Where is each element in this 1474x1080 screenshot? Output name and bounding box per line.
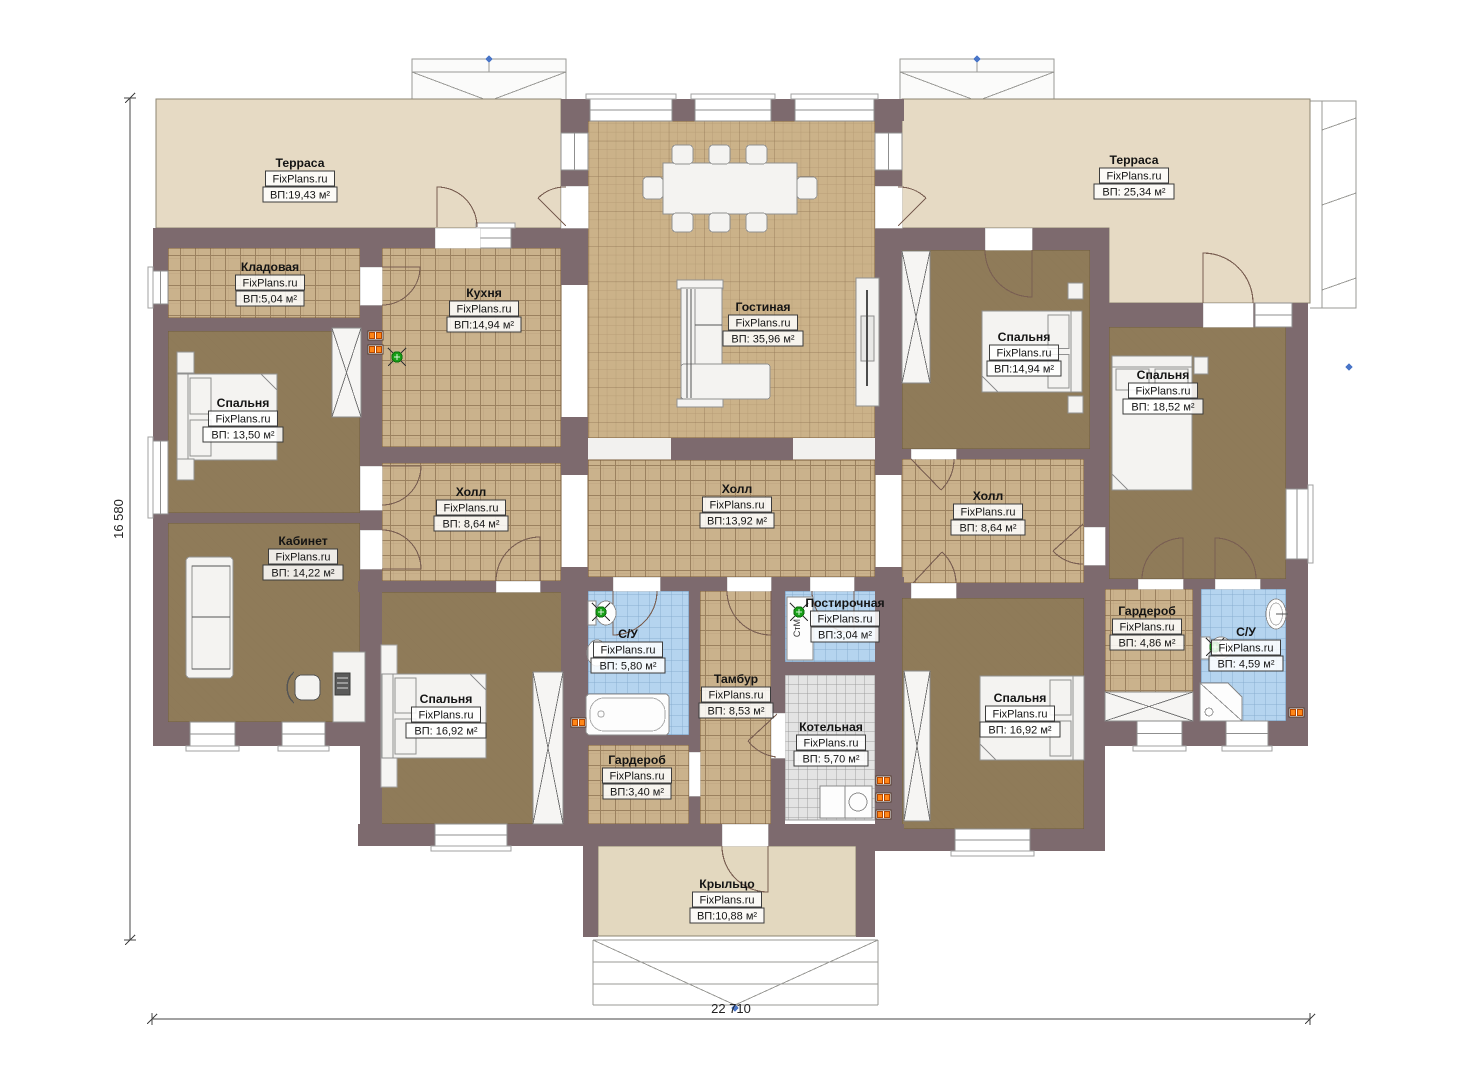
svg-text:С/У: С/У	[618, 627, 638, 641]
svg-text:FixPlans.ru: FixPlans.ru	[456, 304, 511, 316]
svg-text:Холл: Холл	[973, 489, 1004, 503]
svg-text:FixPlans.ru: FixPlans.ru	[992, 709, 1047, 721]
svg-text:Спальня: Спальня	[217, 396, 270, 410]
svg-text:Гардероб: Гардероб	[608, 753, 666, 767]
svg-text:ВП:3,04 м²: ВП:3,04 м²	[818, 630, 872, 642]
svg-text:Гардероб: Гардероб	[1118, 604, 1176, 618]
svg-text:FixPlans.ru: FixPlans.ru	[1135, 386, 1190, 398]
svg-text:ВП:14,94 м²: ВП:14,94 м²	[994, 364, 1054, 376]
svg-text:Тамбур: Тамбур	[714, 672, 758, 686]
svg-text:Кабинет: Кабинет	[278, 534, 327, 548]
svg-text:ВП: 25,34 м²: ВП: 25,34 м²	[1102, 187, 1166, 199]
svg-text:16 580: 16 580	[111, 499, 126, 539]
svg-text:Котельная: Котельная	[799, 720, 863, 734]
svg-text:FixPlans.ru: FixPlans.ru	[443, 503, 498, 515]
svg-text:FixPlans.ru: FixPlans.ru	[803, 738, 858, 750]
svg-text:ВП:10,88 м²: ВП:10,88 м²	[697, 911, 757, 923]
svg-text:FixPlans.ru: FixPlans.ru	[699, 895, 754, 907]
svg-text:ВП:14,94 м²: ВП:14,94 м²	[454, 320, 514, 332]
svg-text:Холл: Холл	[456, 485, 487, 499]
svg-text:Крыльцо: Крыльцо	[699, 877, 754, 891]
svg-text:СтМ: СтМ	[792, 619, 802, 637]
svg-text:FixPlans.ru: FixPlans.ru	[1106, 171, 1161, 183]
svg-text:ВП: 18,52 м²: ВП: 18,52 м²	[1131, 402, 1195, 414]
svg-text:Спальня: Спальня	[420, 692, 473, 706]
svg-text:FixPlans.ru: FixPlans.ru	[960, 507, 1015, 519]
svg-text:ВП:19,43 м²: ВП:19,43 м²	[270, 190, 330, 202]
svg-text:FixPlans.ru: FixPlans.ru	[609, 771, 664, 783]
svg-text:FixPlans.ru: FixPlans.ru	[735, 318, 790, 330]
svg-text:FixPlans.ru: FixPlans.ru	[215, 414, 270, 426]
svg-text:ВП:13,92 м²: ВП:13,92 м²	[707, 516, 767, 528]
svg-text:С/У: С/У	[1236, 625, 1256, 639]
svg-text:FixPlans.ru: FixPlans.ru	[272, 174, 327, 186]
svg-text:FixPlans.ru: FixPlans.ru	[817, 614, 872, 626]
svg-text:Терраса: Терраса	[276, 156, 325, 170]
svg-text:ВП: 8,64 м²: ВП: 8,64 м²	[442, 519, 499, 531]
svg-text:Кладовая: Кладовая	[241, 260, 299, 274]
svg-text:Гостиная: Гостиная	[735, 300, 790, 314]
svg-text:ВП: 4,59 м²: ВП: 4,59 м²	[1217, 659, 1274, 671]
svg-text:ВП:5,04 м²: ВП:5,04 м²	[243, 294, 297, 306]
svg-text:22 710: 22 710	[711, 1001, 751, 1016]
svg-text:Холл: Холл	[722, 482, 753, 496]
svg-text:FixPlans.ru: FixPlans.ru	[418, 710, 473, 722]
svg-text:FixPlans.ru: FixPlans.ru	[1218, 643, 1273, 655]
svg-text:ВП: 4,86 м²: ВП: 4,86 м²	[1118, 638, 1175, 650]
svg-text:ВП: 13,50 м²: ВП: 13,50 м²	[211, 430, 275, 442]
svg-text:Постирочная: Постирочная	[805, 596, 884, 610]
svg-text:FixPlans.ru: FixPlans.ru	[709, 500, 764, 512]
svg-text:ВП: 16,92 м²: ВП: 16,92 м²	[988, 725, 1052, 737]
svg-text:ВП: 35,96 м²: ВП: 35,96 м²	[731, 334, 795, 346]
svg-text:ВП: 16,92 м²: ВП: 16,92 м²	[414, 726, 478, 738]
svg-text:ВП: 5,80 м²: ВП: 5,80 м²	[599, 661, 656, 673]
svg-text:Спальня: Спальня	[998, 330, 1051, 344]
svg-text:ВП: 5,70 м²: ВП: 5,70 м²	[802, 754, 859, 766]
svg-text:FixPlans.ru: FixPlans.ru	[600, 645, 655, 657]
svg-text:ВП: 14,22 м²: ВП: 14,22 м²	[271, 568, 335, 580]
svg-text:ВП:3,40 м²: ВП:3,40 м²	[610, 787, 664, 799]
svg-text:Спальня: Спальня	[1137, 368, 1190, 382]
svg-text:FixPlans.ru: FixPlans.ru	[996, 348, 1051, 360]
svg-text:FixPlans.ru: FixPlans.ru	[708, 690, 763, 702]
svg-text:FixPlans.ru: FixPlans.ru	[275, 552, 330, 564]
svg-text:FixPlans.ru: FixPlans.ru	[1119, 622, 1174, 634]
svg-text:ВП: 8,53 м²: ВП: 8,53 м²	[707, 706, 764, 718]
svg-text:FixPlans.ru: FixPlans.ru	[242, 278, 297, 290]
svg-text:ВП: 8,64 м²: ВП: 8,64 м²	[959, 523, 1016, 535]
svg-text:Терраса: Терраса	[1110, 153, 1159, 167]
svg-text:Кухня: Кухня	[466, 286, 502, 300]
svg-text:Спальня: Спальня	[994, 691, 1047, 705]
